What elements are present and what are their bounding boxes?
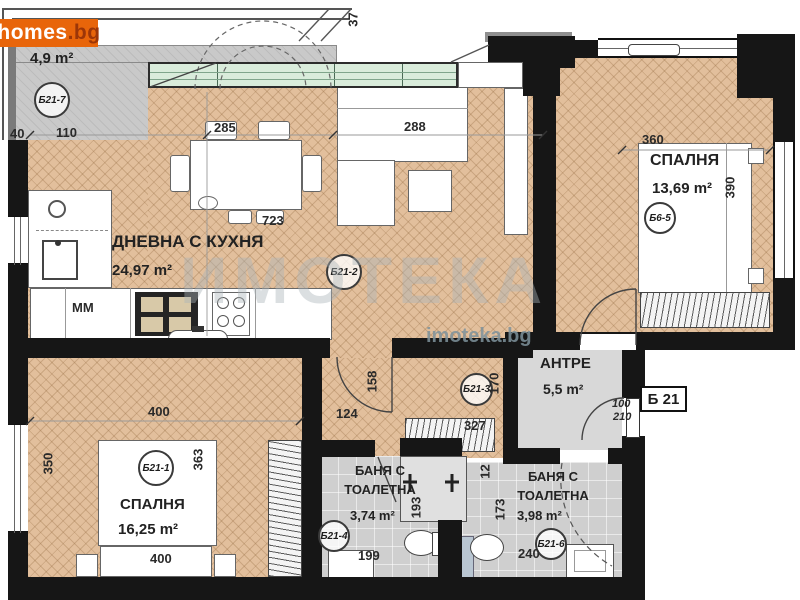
dim-bedroom2-l: 350: [41, 444, 56, 484]
room-code-bedroom1: Б6-5: [644, 202, 676, 234]
dim-entry-h: 210: [613, 411, 631, 423]
dim-roof: 37: [346, 0, 361, 40]
room-name-living: ДНЕВНА С КУХНЯ: [112, 232, 264, 252]
room-code-bath1: Б21-4: [318, 520, 350, 552]
room-area-bedroom1: 13,69 m²: [652, 180, 712, 197]
dim-hall-w: 327: [464, 418, 486, 433]
washing-machine-label: MM: [72, 300, 94, 315]
dim-bedroom2-r: 363: [191, 440, 206, 480]
logo-suffix: .bg: [68, 21, 101, 45]
dim-bedroom2-w: 400: [148, 404, 170, 419]
dim-bath1-d: 193: [409, 488, 424, 528]
dim-bath1-w: 199: [358, 548, 380, 563]
sink-tap: [55, 240, 61, 246]
dim-terrace-a: 40: [10, 126, 24, 141]
homes-bg-logo: homes.bg: [0, 19, 98, 47]
dim-glazing: 285: [214, 120, 236, 135]
dim-entry-w: 100: [612, 398, 630, 410]
floor-plan: ДНЕВНА С КУХНЯ 24,97 m² Б21-2 СПАЛНЯ 13,…: [0, 0, 800, 600]
dim-bedroom2-bed: 400: [150, 551, 172, 566]
room-name-hall: АНТРЕ: [540, 355, 591, 372]
dim-corridor-d: 158: [365, 362, 380, 402]
dim-bath2-d: 173: [493, 490, 508, 530]
room-area-hall: 5,5 m²: [543, 381, 583, 397]
dim-sofa: 288: [404, 119, 426, 134]
dim-bedroom1-w: 360: [642, 132, 664, 147]
room-area-bath1: 3,74 m²: [350, 508, 395, 523]
room-area-living: 24,97 m²: [112, 262, 172, 279]
room-code-bath2: Б21-6: [535, 528, 567, 560]
roof-diagonals: [299, 9, 489, 62]
dim-table: 723: [262, 213, 284, 228]
unit-number-badge: Б 21: [640, 386, 687, 412]
room-area-terrace: 4,9 m²: [30, 50, 73, 67]
dim-hall-d: 170: [487, 364, 502, 404]
curtain-arcs: [195, 21, 331, 89]
dim-terrace-b: 110: [56, 125, 77, 140]
room-area-bedroom2: 16,25 m²: [118, 521, 178, 538]
room-name-bath2: БАНЯ С ТОАЛЕТНА: [498, 468, 608, 506]
logo-text: homes: [0, 21, 68, 45]
room-code-bedroom2: Б21-1: [138, 450, 174, 486]
room-name-bedroom1: СПАЛНЯ: [650, 152, 719, 170]
dim-corridor-w: 124: [336, 406, 358, 421]
room-name-bedroom2: СПАЛНЯ: [120, 496, 185, 513]
dim-bath2-w: 240: [518, 546, 540, 561]
room-code-terrace: Б21-7: [34, 82, 70, 118]
room-area-bath2: 3,98 m²: [517, 508, 562, 523]
room-code-living: Б21-2: [326, 254, 362, 290]
dim-bath2-o: 12: [478, 457, 493, 487]
dim-bedroom1-d: 390: [723, 168, 738, 208]
